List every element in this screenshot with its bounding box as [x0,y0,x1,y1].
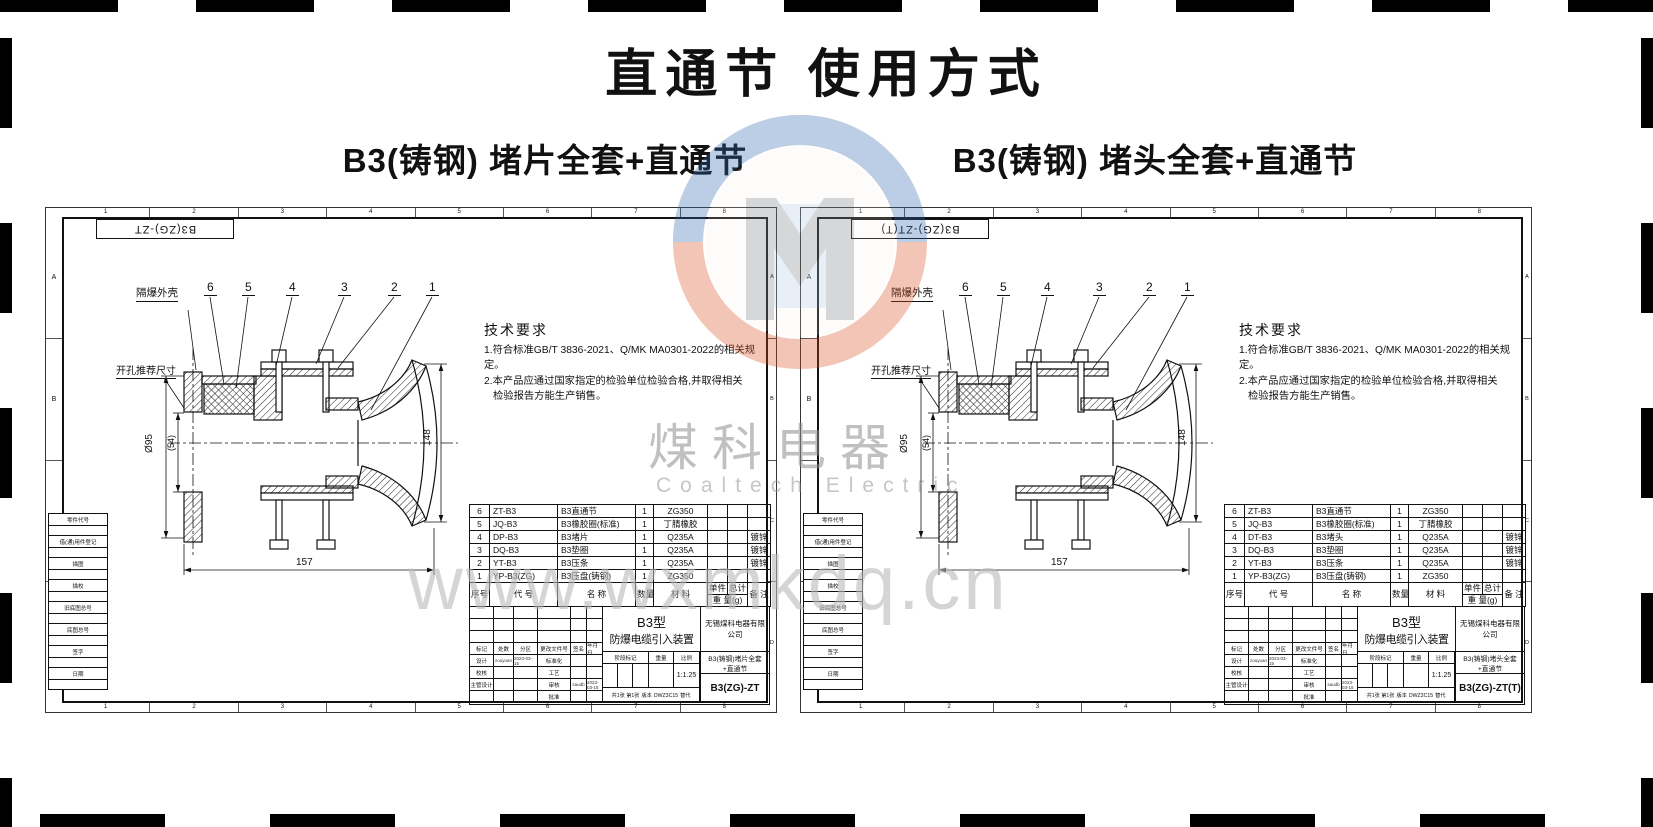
grid-cell [571,607,587,619]
grid-cell [1249,691,1269,703]
zone-row: B [46,339,62,461]
grid-cell [494,691,514,703]
drawing-number-corner-box: B3(ZG)-ZT(T) [851,219,989,239]
table-row: 6ZT-B3B3直通节1ZG350 [1225,505,1526,518]
dim-54: (54) [921,435,931,451]
part-material: ZG350 [654,570,708,583]
callout-6: 6 [959,280,972,296]
binding-margin-blocks: 零件代号 借(通)用件登记 描图 描校 旧底图总号 底图总号 签字 日期 [803,514,863,690]
design-date: 2023-03-15 [1269,655,1293,667]
callout-3: 3 [1093,280,1106,296]
technical-requirements: 技术要求 1.符合标准GB/T 3836-2021、Q/MK MA0301-20… [484,320,766,405]
zone-col: 4 [1082,208,1170,217]
table-row: 2YT-B3B3压条1Q235A镀锌 [470,557,771,570]
part-name: B3垫圈 [1313,544,1391,557]
grid-cell [1326,691,1342,703]
table-row: 5JQ-B3B3橡胶圈(标准)1丁腈橡胶 [470,518,771,531]
zone-col: 3 [239,208,327,217]
table-row: 6ZT-B3B3直通节1ZG350 [470,505,771,518]
grid-cell [571,667,587,679]
header-note: 备 注 [748,583,771,607]
part-name: B3直通节 [558,505,636,518]
part-material: Q235A [1409,544,1463,557]
part-note [748,570,771,583]
part-code: DQ-B3 [1245,544,1313,557]
header-qty: 数量 [636,583,654,607]
grid-cell [494,679,514,691]
grid-cell [1326,619,1342,631]
part-material: Q235A [1409,531,1463,544]
part-qty: 1 [1391,518,1409,531]
stage-cell [1388,664,1404,688]
part-material: Q235A [654,557,708,570]
zone-col: 2 [150,703,238,712]
tech-req-line: 2.本产品应通过国家指定的检验单位检验合格,并取得相关 [484,374,766,389]
design-date: 2023-03-15 [514,655,538,667]
tech-req-title: 技术要求 [484,320,766,340]
weight-header: 重量 [649,652,674,664]
sheet-count: 共1张 第1张 [612,692,640,699]
grid-cell [1269,607,1293,619]
zone-col: 2 [150,208,238,217]
product-type: B3型 [637,612,666,631]
grid-cell [1249,619,1269,631]
stage-cells-row: 1:1.25 [1358,664,1455,688]
role-chief: 主管设计 [470,679,494,691]
header-material: 材 料 [654,583,708,607]
grid-cell [587,607,603,619]
grid-cell [1225,691,1249,703]
role-design: 设计 [1225,655,1249,667]
zone-col: 4 [327,208,415,217]
grid-cell [494,619,514,631]
grid-cell [1342,691,1358,703]
part-total-weight [728,505,748,518]
grid-cell [1342,655,1358,667]
grid-cell [1342,607,1358,619]
part-note [748,518,771,531]
callout-5: 5 [997,280,1010,296]
role-audit: 审核 [1293,679,1326,691]
enclosure-wall-group [164,310,202,542]
audit-date: 2023-03-15 [587,679,603,691]
part-code: JQ-B3 [1245,518,1313,531]
zone-col: 5 [416,208,504,217]
part-unit-weight [708,531,728,544]
grid-cell [571,619,587,631]
part-total-weight [728,544,748,557]
grid-cell [587,655,603,667]
header-no: 序号 [470,583,490,607]
grid-cell [514,607,538,619]
dim-157: 157 [1051,557,1068,568]
header-qty: 数量 [1391,583,1409,607]
part-note: 镀锌 [748,557,771,570]
binding-margin-blocks: 零件代号 借(通)用件登记 描图 描校 旧底图总号 底图总号 签字 日期 [48,514,108,690]
stage-mark-header: 阶段标记 [1358,652,1404,664]
grid-cell [1269,679,1293,691]
role-standard: 标准化 [538,655,571,667]
zone-col: 4 [1082,703,1170,712]
grid-cell [514,631,538,643]
grid-cell [587,619,603,631]
subtitle-right: B3(铸钢) 堵头全套+直通节 [850,134,1460,182]
grid-cell [1326,631,1342,643]
stage-cell [618,664,633,688]
part-qty: 1 [636,531,654,544]
part-no: 3 [1225,544,1245,557]
part-no: 6 [1225,505,1245,518]
drawing-number-corner-box: B3(ZG)-ZT [96,219,234,239]
grid-cell [470,619,494,631]
role-approve: 批准 [1293,691,1326,703]
callout-5: 5 [242,280,255,296]
sheet-info-row: 共1张 第1张 版本 DWZ3C15 替代 [1358,688,1455,703]
table-row: 1YP-B3(ZG)B3压盘(铸钢)1ZG350 [1225,570,1526,583]
enclosure-wall-group [919,310,957,542]
grid-cell [494,667,514,679]
product-name-block: B3型 防爆电缆引入装置 [603,607,700,652]
part-note: 镀锌 [1503,557,1526,570]
section-view: 隔爆外壳 6 5 4 3 2 1 开孔推荐尺寸 Ø95 (54) 148 157 [871,280,1251,610]
role-design: 设计 [470,655,494,667]
header-name: 名 称 [1313,583,1391,607]
part-code: DQ-B3 [490,544,558,557]
zone-col: 8 [1436,208,1523,217]
table-row: 4DT-B3B3堵头1Q235A镀锌 [1225,531,1526,544]
grid-cell [494,631,514,643]
version-label: 版本 [641,692,651,699]
zone-row: A [46,217,62,339]
header-unit: 单件 [708,583,728,595]
grid-cell [1249,679,1269,691]
grid-cell [1249,607,1269,619]
weight-value [1404,664,1429,688]
revision-signature-grid: 标记 处数 分区 更改文件号 签名 年月日 设计 zouyuan 2023-03… [1225,607,1358,703]
part-note: 镀锌 [748,544,771,557]
part-name: B3橡胶圈(标准) [1313,518,1391,531]
grid-cell [1326,667,1342,679]
grid-cell [538,619,571,631]
engineering-drawing-left: 12345678 12345678 ABCD ABCD B3(ZG)-ZT 零件… [45,207,777,713]
page-edge-mark-top [0,0,1653,12]
part-material: Q235A [654,544,708,557]
rev-header-doc: 更改文件号 [538,643,571,655]
part-note: 镀锌 [1503,544,1526,557]
drawing-title: B3(铸钢)堵片全套+直通节 [700,652,769,674]
part-unit-weight [708,570,728,583]
role-approve: 批准 [538,691,571,703]
header-material: 材 料 [1409,583,1463,607]
grid-cell [587,667,603,679]
grid-cell [1269,631,1293,643]
part-unit-weight [1463,570,1483,583]
enclosure-label: 隔爆外壳 [136,285,178,302]
callout-6: 6 [204,280,217,296]
rev-header-mark: 标记 [1225,643,1249,655]
grid-cell [1269,667,1293,679]
part-code: DT-B3 [1245,531,1313,544]
table-header-row: 序号 代 号 名 称 数量 材 料 单件 总计 备 注 [1225,583,1526,595]
grid-cell [1269,619,1293,631]
part-qty: 1 [1391,531,1409,544]
part-total-weight [728,570,748,583]
part-total-weight [1483,518,1503,531]
callout-1: 1 [1181,280,1194,296]
part-material: Q235A [1409,557,1463,570]
scale-header: 比例 [674,652,700,664]
grid-cell [514,619,538,631]
subtitle-left: B3(铸钢) 堵片全套+直通节 [240,134,850,182]
part-total-weight [1483,570,1503,583]
parts-table: 6ZT-B3B3直通节1ZG350 5JQ-B3B3橡胶圈(标准)1丁腈橡胶 4… [1224,504,1526,607]
grid-cell [1225,607,1249,619]
page-edge-mark-right [1641,0,1653,827]
table-row: 3DQ-B3B3垫圈1Q235A镀锌 [470,544,771,557]
rev-header-date: 年月日 [587,643,603,655]
part-name: B3直通节 [1313,505,1391,518]
part-code: ZT-B3 [490,505,558,518]
rev-header-zone: 分区 [514,643,538,655]
drawing-number: B3(ZG)-ZT [700,674,769,703]
grid-cell [571,655,587,667]
part-qty: 1 [1391,544,1409,557]
part-note [748,505,771,518]
product-type: B3型 [1392,612,1421,631]
table-row: 1YP-B3(ZG)B3压盘(铸钢)1ZG350 [470,570,771,583]
part-unit-weight [708,518,728,531]
audit-date: 2023-03-15 [1342,679,1358,691]
grid-cell [514,679,538,691]
part-total-weight [728,518,748,531]
zone-numbers-top: 12345678 [817,208,1523,217]
part-name: B3橡胶圈(标准) [558,518,636,531]
part-no: 1 [470,570,490,583]
grid-cell [514,667,538,679]
product-name: 防爆电缆引入装置 [610,631,694,647]
callout-4: 4 [1041,280,1054,296]
tech-req-line: 2.本产品应通过国家指定的检验单位检验合格,并取得相关 [1239,374,1521,389]
part-no: 6 [470,505,490,518]
part-qty: 1 [636,518,654,531]
part-code: DP-B3 [490,531,558,544]
role-chief: 主管设计 [1225,679,1249,691]
enclosure-label: 隔爆外壳 [891,285,933,302]
page-edge-mark-bottom [0,814,1653,827]
header-total: 总计 [1483,583,1503,595]
part-unit-weight [1463,544,1483,557]
grid-cell [494,607,514,619]
design-signature: zouyuan [1249,655,1269,667]
replace-label: 替代 [680,692,690,699]
grid-cell [1342,667,1358,679]
part-note [1503,570,1526,583]
role-craft: 工艺 [1293,667,1326,679]
zone-col: 3 [994,703,1082,712]
zone-col: 1 [62,703,150,712]
table-row: 4DP-B3B3堵片1Q235A镀锌 [470,531,771,544]
grid-cell [1326,655,1342,667]
sheet-info-row: 共1张 第1张 版本 DWZ3C15 替代 [603,688,700,703]
header-no: 序号 [1225,583,1245,607]
part-no: 2 [1225,557,1245,570]
part-no: 1 [1225,570,1245,583]
grid-cell [1249,631,1269,643]
grid-cell [1293,619,1326,631]
rev-header-sign: 签名 [1326,643,1342,655]
table-row: 2YT-B3B3压条1Q235A镀锌 [1225,557,1526,570]
part-qty: 1 [1391,557,1409,570]
company-name: 无锡煤科电器有限公司 [700,607,769,652]
part-no: 5 [1225,518,1245,531]
zone-col: 2 [905,208,993,217]
zone-col: 4 [327,703,415,712]
hole-size-label: 开孔推荐尺寸 [871,362,931,379]
part-no: 2 [470,557,490,570]
part-unit-weight [1463,505,1483,518]
drawing-number: B3(ZG)-ZT(T) [1455,674,1524,703]
part-material: ZG350 [654,505,708,518]
table-header-row: 序号 代 号 名 称 数量 材 料 单件 总计 备 注 [470,583,771,595]
title-block: 标记 处数 分区 更改文件号 签名 年月日 设计 zouyuan 2023-03… [1224,606,1525,705]
version-label: 版本 [1396,692,1406,699]
callout-2: 2 [1143,280,1156,296]
part-unit-weight [1463,531,1483,544]
part-code: ZT-B3 [1245,505,1313,518]
stage-mark-header: 阶段标记 [603,652,649,664]
grid-cell [587,631,603,643]
rev-header-doc: 更改文件号 [1293,643,1326,655]
grid-cell [538,607,571,619]
grid-cell [470,607,494,619]
zone-row: B [768,339,776,461]
version-value: DWZ3C15 [654,693,678,699]
header-total: 总计 [728,583,748,595]
zone-col: 1 [817,208,905,217]
dim-diameter-95: Ø95 [144,434,155,453]
rev-header-count: 处数 [1249,643,1269,655]
part-unit-weight [1463,518,1483,531]
version-value: DWZ3C15 [1409,693,1433,699]
stage-header-row: 阶段标记 重量 比例 [1358,652,1455,664]
role-standard: 标准化 [1293,655,1326,667]
part-note: 镀锌 [748,531,771,544]
grid-cell [538,631,571,643]
part-material: ZG350 [1409,570,1463,583]
header-name: 名 称 [558,583,636,607]
part-name: B3压盘(铸钢) [558,570,636,583]
zone-col: 1 [62,208,150,217]
stage-cell [603,664,618,688]
part-no: 3 [470,544,490,557]
hole-size-label: 开孔推荐尺寸 [116,362,176,379]
tech-req-line: 检验报告方能生产销售。 [484,389,766,404]
zone-col: 3 [994,208,1082,217]
part-note [1503,505,1526,518]
part-name: B3压条 [1313,557,1391,570]
zone-row: A [801,217,817,339]
stage-cell [633,664,649,688]
zone-row: B [1523,339,1531,461]
part-name: B3压条 [558,557,636,570]
header-weight: 重 量(g) [1463,595,1503,607]
grid-cell [1326,607,1342,619]
product-name: 防爆电缆引入装置 [1365,631,1449,647]
grid-cell [514,691,538,703]
zone-col: 2 [905,703,993,712]
part-total-weight [1483,544,1503,557]
grid-cell [571,691,587,703]
grid-cell [1225,619,1249,631]
zone-col: 6 [504,208,592,217]
grid-cell [1225,631,1249,643]
part-qty: 1 [1391,505,1409,518]
page-edge-mark-left [0,0,12,827]
zone-col: 6 [1259,208,1347,217]
zone-col: 7 [1347,208,1435,217]
part-unit-weight [708,544,728,557]
role-check: 校核 [1225,667,1249,679]
callout-3: 3 [338,280,351,296]
part-code: YT-B3 [1245,557,1313,570]
zone-col: 7 [592,208,680,217]
part-qty: 1 [636,570,654,583]
zone-col: 3 [239,703,327,712]
weight-value [649,664,674,688]
role-check: 校核 [470,667,494,679]
part-material: Q235A [654,531,708,544]
rev-header-date: 年月日 [1342,643,1358,655]
part-no: 4 [1225,531,1245,544]
dim-157: 157 [296,557,313,568]
rev-header-sign: 签名 [571,643,587,655]
grid-cell [571,631,587,643]
parts-table: 6ZT-B3B3直通节1ZG350 5JQ-B3B3橡胶圈(标准)1丁腈橡胶 4… [469,504,771,607]
scale-value: 1:1.25 [1429,664,1455,688]
stage-header-row: 阶段标记 重量 比例 [603,652,700,664]
margin-blank-cell [803,679,863,690]
title-block: 标记 处数 分区 更改文件号 签名 年月日 设计 zouyuan 2023-03… [469,606,770,705]
callout-2: 2 [388,280,401,296]
callout-1: 1 [426,280,439,296]
replace-label: 替代 [1435,692,1445,699]
scale-value: 1:1.25 [674,664,700,688]
part-no: 4 [470,531,490,544]
grid-cell [1342,631,1358,643]
stage-cell [1358,664,1373,688]
tech-req-line: 检验报告方能生产销售。 [1239,389,1521,404]
header-weight: 重 量(g) [708,595,748,607]
grid-cell [470,631,494,643]
grid-cell [1342,619,1358,631]
header-note: 备 注 [1503,583,1526,607]
part-code: YP-B3(ZG) [490,570,558,583]
weight-header: 重量 [1404,652,1429,664]
role-craft: 工艺 [538,667,571,679]
part-unit-weight [1463,557,1483,570]
part-total-weight [728,531,748,544]
part-qty: 1 [636,557,654,570]
part-material: ZG350 [1409,505,1463,518]
zone-col: 8 [681,208,768,217]
tech-req-line: 1.符合标准GB/T 3836-2021、Q/MK MA0301-2022的相关… [484,343,766,374]
part-no: 5 [470,518,490,531]
margin-blank-cell [48,679,108,690]
engineering-drawing-right: 12345678 12345678 ABCD ABCD B3(ZG)-ZT(T)… [800,207,1532,713]
section-view: 隔爆外壳 6 5 4 3 2 1 开孔推荐尺寸 Ø95 (54) 148 157 [116,280,496,610]
part-name: B3堵片 [558,531,636,544]
part-qty: 1 [636,505,654,518]
